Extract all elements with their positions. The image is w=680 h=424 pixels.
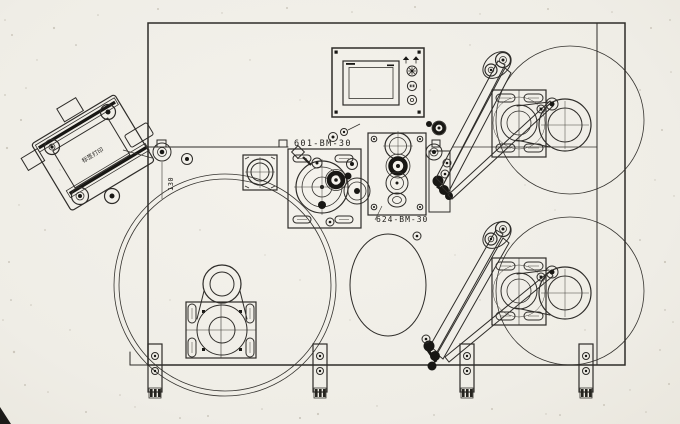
dimension-130: 130 bbox=[162, 162, 175, 199]
scan-noise bbox=[2, 6, 675, 419]
label-624-BM-30: 624-BM-30 bbox=[376, 215, 428, 224]
pinch-roller-dark bbox=[326, 170, 347, 191]
lower-dancer-arm bbox=[422, 216, 553, 370]
hmi-screen[interactable] bbox=[349, 68, 393, 99]
label-601-BM-30: 601-BM-30 bbox=[294, 139, 352, 149]
exit-roller bbox=[388, 193, 406, 207]
pin bbox=[426, 121, 432, 127]
unwind-mount-plate bbox=[186, 302, 256, 358]
machine-assembly-drawing: 标签打印 130 bbox=[0, 0, 680, 424]
frame-cutout-window bbox=[350, 234, 426, 336]
printer-roller bbox=[105, 189, 120, 204]
web-guide-roller bbox=[153, 143, 193, 165]
dimension-130-text: 130 bbox=[167, 177, 175, 191]
lower-reel-diameter bbox=[496, 217, 644, 365]
reel-inner-diameter bbox=[119, 179, 331, 391]
upper-dancer-arm bbox=[436, 46, 553, 199]
machine-frame bbox=[130, 23, 625, 365]
indicator-lamp-icon bbox=[403, 56, 419, 63]
mounting-feet bbox=[148, 344, 593, 398]
scan-corner-mark bbox=[0, 407, 11, 424]
upper-rewind-assembly bbox=[436, 46, 644, 199]
printer-roller bbox=[72, 188, 89, 205]
mounting-foot-3 bbox=[460, 344, 474, 398]
scanned-drawing-page: 标签打印 130 bbox=[0, 0, 680, 424]
printer-head: 标签打印 bbox=[9, 79, 156, 219]
panel-button-run[interactable] bbox=[407, 81, 416, 90]
panel-button-stop[interactable] bbox=[407, 95, 416, 104]
feed-plate-601: 601-BM-30 bbox=[288, 139, 361, 228]
upper-reel-diameter bbox=[496, 46, 644, 194]
hmi-brand-mark bbox=[346, 63, 355, 65]
mounting-foot-4 bbox=[579, 344, 593, 398]
mounting-foot-1 bbox=[148, 344, 162, 398]
lower-rewind-assembly bbox=[422, 216, 644, 370]
mounting-foot-2 bbox=[313, 344, 327, 398]
printer-tab bbox=[57, 98, 84, 122]
idler-roller bbox=[344, 178, 370, 204]
feed-plate-624: 624-BM-30 bbox=[368, 131, 428, 224]
pin bbox=[318, 201, 326, 209]
printer-rail-upper bbox=[38, 101, 116, 150]
control-panel bbox=[332, 48, 424, 117]
frame-tab bbox=[279, 140, 287, 147]
panel-button-emergency[interactable] bbox=[407, 66, 417, 76]
arm-pivot-bracket bbox=[426, 121, 453, 212]
printer-head-label: 标签打印 bbox=[80, 145, 105, 164]
hmi-logo-mark bbox=[387, 65, 394, 67]
